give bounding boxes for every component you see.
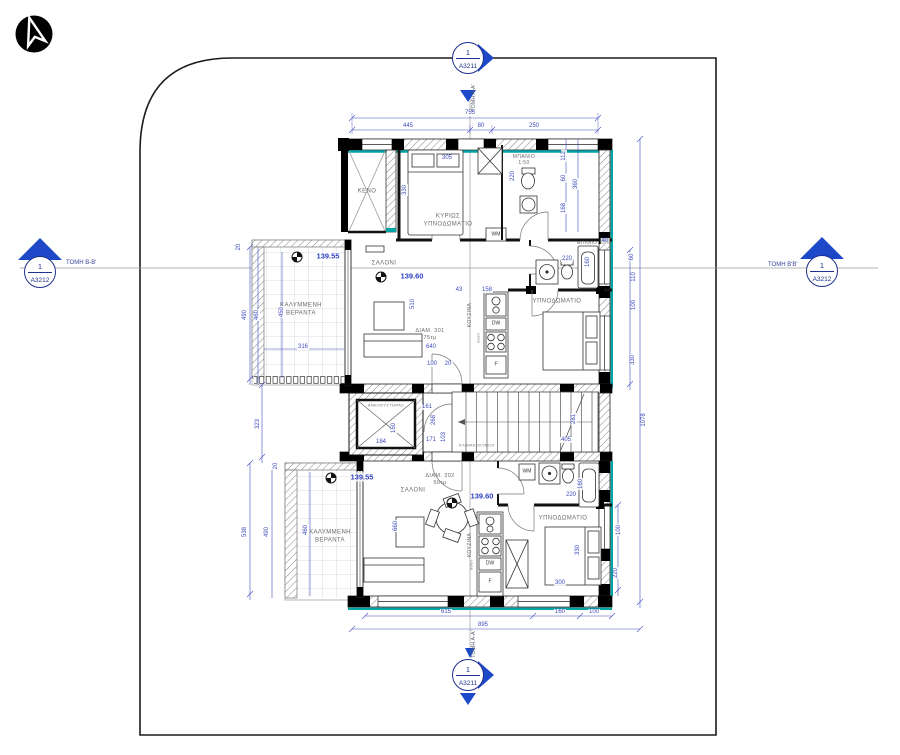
dishwasher-upper [486, 318, 506, 330]
dining-table-lower [436, 502, 468, 534]
section-axis-label-top: ΤΟΜΗ Α-Α' [471, 84, 477, 112]
section-marker-bottom: 1 A3211 [452, 659, 484, 691]
veranda-upper-area [252, 240, 348, 385]
section-number: 1 [810, 256, 833, 272]
staircase-area [452, 392, 598, 452]
toilet-mid [561, 260, 573, 265]
table-lower [396, 517, 424, 547]
dishwasher-lower [479, 558, 501, 570]
section-sheet: A3212 [813, 272, 832, 286]
section-sheet: A3211 [459, 676, 477, 690]
section-marker-top: 1 A3211 [452, 42, 484, 74]
section-sheet: A3211 [459, 59, 477, 73]
section-number: 1 [456, 43, 479, 59]
section-axis-label-right: ΤΟΜΗ Β'Β' [768, 262, 798, 268]
sofa-lower [364, 558, 424, 582]
section-axis-label-left: ΤΟΜΗ Β-Β' [66, 260, 96, 266]
veranda-lower-area [285, 463, 362, 600]
north-arrow-logo [11, 11, 57, 57]
elevator-shaft [349, 393, 423, 455]
section-marker-left: 1 A3212 [24, 256, 56, 288]
toilet-lower [562, 464, 574, 469]
sofa-upper [364, 334, 422, 357]
drawing-canvas: ΚΕΝΟΚΥΡΙΩΣ ΥΠΝΟΔΩΜΑΤΙΟΜΠΑΝΙΟ 1:50ΣΑΛΟΝΙΚ… [0, 0, 900, 755]
washing-machine-lower [519, 464, 535, 480]
section-marker-right: 1 A3212 [806, 255, 838, 287]
section-axis-label-bottom: ΤΟΜΗ Α-Α' [471, 630, 477, 658]
section-number: 1 [28, 257, 51, 273]
section-number: 1 [456, 660, 479, 676]
floor-plan-linework [0, 0, 900, 755]
section-sheet: A3212 [31, 273, 50, 287]
table-upper [374, 302, 404, 330]
fridge-lower [479, 572, 501, 592]
tv-unit-upper [366, 246, 384, 252]
fridge-upper [486, 356, 506, 374]
